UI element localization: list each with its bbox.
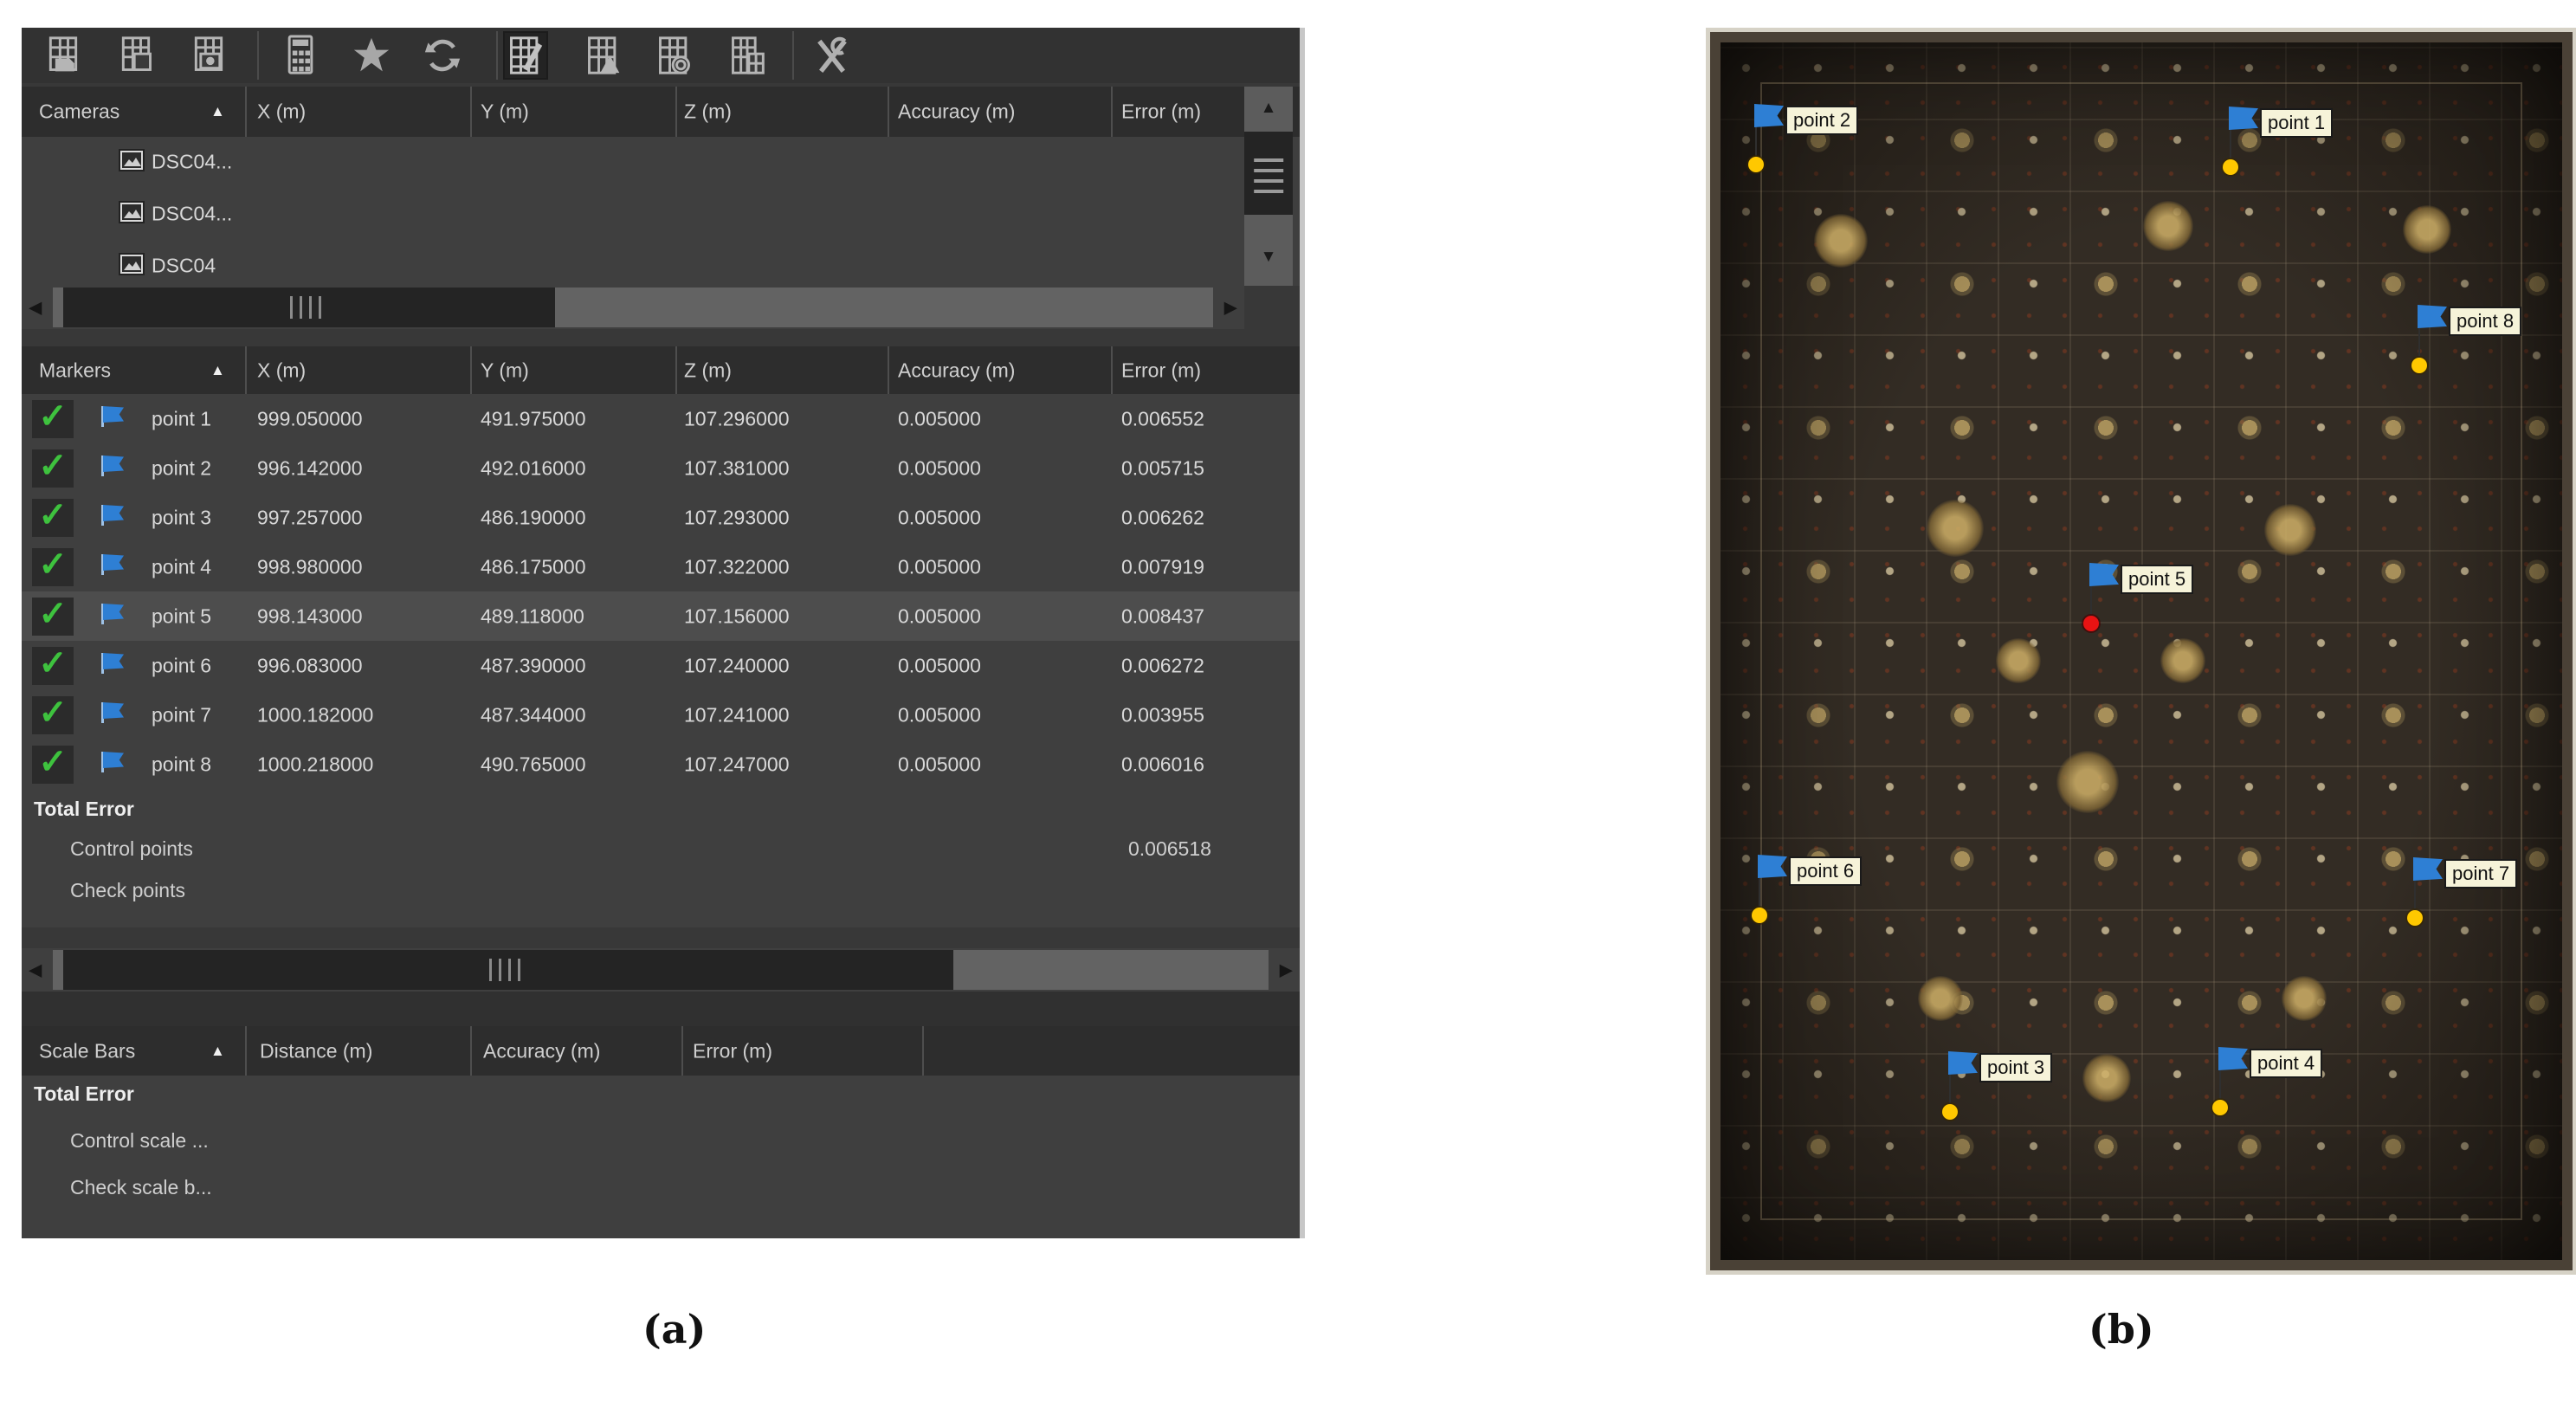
marker-z: 107.296000 xyxy=(684,407,790,430)
reference-pane: Cameras ▲ X (m) Y (m) Z (m) Accuracy (m)… xyxy=(22,28,1305,1238)
sort-ascending-icon[interactable]: ▲ xyxy=(210,1043,225,1060)
check-icon: ✓ xyxy=(38,646,68,681)
marker-dot-yellow xyxy=(1942,1104,1958,1120)
marker-checkbox[interactable]: ✓ xyxy=(32,499,74,537)
marker-x: 996.083000 xyxy=(257,654,363,677)
rosette-ornament xyxy=(1996,638,2041,683)
scrollbar-grip xyxy=(290,296,328,319)
marker-name: point 5 xyxy=(152,604,211,628)
marker-error: 0.006016 xyxy=(1121,753,1204,776)
marker-accuracy: 0.005000 xyxy=(898,654,981,677)
rosette-ornament xyxy=(1918,976,1963,1021)
marker-pole xyxy=(1755,125,1757,159)
column-separator[interactable] xyxy=(922,1026,924,1076)
marker-pole xyxy=(2414,878,2416,913)
scrollbar-thumb[interactable] xyxy=(1244,132,1293,215)
column-separator[interactable] xyxy=(1111,346,1113,394)
column-separator[interactable] xyxy=(888,87,889,137)
caption-b: (b) xyxy=(2089,1306,2154,1353)
check-icon: ✓ xyxy=(38,695,68,730)
marker-error: 0.003955 xyxy=(1121,703,1204,727)
marker-checkbox[interactable]: ✓ xyxy=(32,598,74,636)
marker-y: 487.390000 xyxy=(481,654,586,677)
photo-icon xyxy=(119,253,145,275)
flag-icon xyxy=(100,505,124,526)
scroll-right-icon[interactable]: ▶ xyxy=(1280,959,1293,981)
view-errors-icon[interactable] xyxy=(583,33,624,78)
marker-dot-yellow xyxy=(1752,908,1767,923)
toolbar-separator xyxy=(257,31,259,80)
cameras-horizontal-scrollbar[interactable]: ◀ ▶ xyxy=(22,286,1244,329)
marker-dot-yellow xyxy=(2407,910,2423,926)
marker-accuracy: 0.005000 xyxy=(898,506,981,529)
scroll-up-icon[interactable]: ▲ xyxy=(1261,99,1277,118)
column-separator[interactable] xyxy=(470,1026,472,1076)
scale-bars-title[interactable]: Scale Bars xyxy=(39,1039,135,1063)
check-icon: ✓ xyxy=(38,399,68,434)
cameras-table-header: Cameras ▲ X (m) Y (m) Z (m) Accuracy (m)… xyxy=(22,87,1300,137)
rosette-ornament xyxy=(2403,205,2451,254)
check-scale-bars-label: Check scale b... xyxy=(70,1176,212,1199)
check-icon: ✓ xyxy=(38,745,68,779)
marker-label: point 8 xyxy=(2449,307,2521,336)
marker-error: 0.008437 xyxy=(1121,604,1204,628)
marker-checkbox[interactable]: ✓ xyxy=(32,696,74,734)
optimize-cameras-icon[interactable] xyxy=(351,33,392,78)
marker-label: point 3 xyxy=(1979,1053,2052,1082)
marker-y: 486.175000 xyxy=(481,555,586,578)
column-accuracy[interactable]: Accuracy (m) xyxy=(898,359,1015,382)
reference-toolbar xyxy=(22,28,1300,83)
check-icon: ✓ xyxy=(38,597,68,631)
marker-x: 996.142000 xyxy=(257,456,363,480)
marker-name: point 7 xyxy=(152,703,211,727)
scale-bars-table-header: Scale Bars ▲ Distance (m) Accuracy (m) E… xyxy=(22,1026,1300,1076)
marker-row[interactable]: ✓ point 3 997.257000 486.190000 107.2930… xyxy=(22,493,1300,542)
marker-accuracy: 0.005000 xyxy=(898,555,981,578)
control-points-error-value: 0.006518 xyxy=(1128,837,1211,861)
marker-x: 998.980000 xyxy=(257,555,363,578)
column-z[interactable]: Z (m) xyxy=(684,100,732,124)
view-rotation-angles-icon[interactable] xyxy=(726,33,768,78)
marker-label: point 7 xyxy=(2444,859,2517,888)
column-separator[interactable] xyxy=(470,346,472,394)
marker-name: point 1 xyxy=(152,407,211,430)
photo-icon xyxy=(119,149,145,171)
update-transform-icon[interactable] xyxy=(422,33,463,78)
scroll-left-icon[interactable]: ◀ xyxy=(29,297,42,319)
check-icon: ✓ xyxy=(38,498,68,533)
column-separator[interactable] xyxy=(245,346,247,394)
central-star-ornament xyxy=(2056,751,2119,813)
camera-name: DSC04... xyxy=(152,202,232,225)
marker-checkbox[interactable]: ✓ xyxy=(32,400,74,438)
flag-icon xyxy=(100,554,124,575)
marker-accuracy: 0.005000 xyxy=(898,604,981,628)
marker-z: 107.156000 xyxy=(684,604,790,628)
marker-name: point 8 xyxy=(152,753,211,776)
rosette-ornament xyxy=(2143,201,2193,251)
column-separator[interactable] xyxy=(675,346,677,394)
marker-x: 1000.182000 xyxy=(257,703,373,727)
marker-error: 0.005715 xyxy=(1121,456,1204,480)
marker-dot-yellow xyxy=(2411,358,2427,373)
column-separator[interactable] xyxy=(245,87,247,137)
marker-accuracy: 0.005000 xyxy=(898,407,981,430)
camera-row[interactable]: DSC04... xyxy=(22,189,1300,238)
rosette-ornament xyxy=(1927,500,1984,557)
marker-x: 999.050000 xyxy=(257,407,363,430)
marker-row[interactable]: ✓ point 6 996.083000 487.390000 107.2400… xyxy=(22,641,1300,690)
column-y[interactable]: Y (m) xyxy=(481,100,529,124)
marker-checkbox[interactable]: ✓ xyxy=(32,449,74,488)
marker-y: 491.975000 xyxy=(481,407,586,430)
marker-error: 0.006272 xyxy=(1121,654,1204,677)
check-points-label: Check points xyxy=(70,879,185,902)
capture-reference-icon[interactable] xyxy=(188,33,229,78)
marker-pole xyxy=(2219,1068,2221,1102)
control-points-label: Control points xyxy=(70,837,193,861)
cameras-title[interactable]: Cameras xyxy=(39,100,119,124)
flag-icon xyxy=(100,653,124,674)
check-icon: ✓ xyxy=(38,449,68,483)
check-icon: ✓ xyxy=(38,547,68,582)
marker-checkbox[interactable]: ✓ xyxy=(32,746,74,784)
column-error[interactable]: Error (m) xyxy=(1121,359,1201,382)
column-separator[interactable] xyxy=(245,1026,247,1076)
marker-dot-yellow xyxy=(2212,1100,2228,1115)
markers-title[interactable]: Markers xyxy=(39,359,111,382)
marker-z: 107.322000 xyxy=(684,555,790,578)
marker-name: point 6 xyxy=(152,654,211,677)
marker-label: point 4 xyxy=(2250,1049,2322,1078)
marker-row[interactable]: ✓ point 8 1000.218000 490.765000 107.247… xyxy=(22,740,1300,789)
flag-icon xyxy=(100,604,124,624)
marker-z: 107.293000 xyxy=(684,506,790,529)
marker-row-selected[interactable]: ✓ point 5 998.143000 489.118000 107.1560… xyxy=(22,591,1300,641)
sort-ascending-icon[interactable]: ▲ xyxy=(210,362,225,379)
import-reference-icon[interactable] xyxy=(42,33,84,78)
coffer-border xyxy=(1760,82,2522,1220)
marker-accuracy: 0.005000 xyxy=(898,703,981,727)
rosette-ornament xyxy=(2264,504,2316,556)
scale-bars-table-body: Total Error Control scale ... Check scal… xyxy=(22,1076,1300,1238)
markers-table-body: ✓ point 1 999.050000 491.975000 107.2960… xyxy=(22,394,1300,927)
scrollbar-grip xyxy=(489,959,527,981)
marker-pole xyxy=(2230,127,2231,162)
ceiling-orthophoto: point 2 point 1 point 8 point 5 point 6 … xyxy=(1706,28,2576,1275)
toolbar-separator xyxy=(496,31,498,80)
toolbar-separator xyxy=(792,31,794,80)
column-accuracy[interactable]: Accuracy (m) xyxy=(483,1039,600,1063)
column-separator[interactable] xyxy=(470,87,472,137)
camera-name: DSC04... xyxy=(152,150,232,173)
cameras-table-body: DSC04... DSC04... DSC04 xyxy=(22,137,1300,286)
marker-x: 998.143000 xyxy=(257,604,363,628)
marker-z: 107.241000 xyxy=(684,703,790,727)
marker-row[interactable]: ✓ point 2 996.142000 492.016000 107.3810… xyxy=(22,443,1300,493)
marker-y: 487.344000 xyxy=(481,703,586,727)
marker-label: point 1 xyxy=(2260,108,2333,138)
marker-checkbox[interactable]: ✓ xyxy=(32,647,74,685)
rosette-ornament xyxy=(2282,976,2327,1021)
marker-z: 107.381000 xyxy=(684,456,790,480)
marker-z: 107.240000 xyxy=(684,654,790,677)
marker-name: point 2 xyxy=(152,456,211,480)
column-separator[interactable] xyxy=(681,1026,683,1076)
marker-checkbox[interactable]: ✓ xyxy=(32,548,74,586)
marker-accuracy: 0.005000 xyxy=(898,456,981,480)
marker-name: point 3 xyxy=(152,506,211,529)
flag-icon xyxy=(100,702,124,723)
column-z[interactable]: Z (m) xyxy=(684,359,732,382)
scrollbar-thumb[interactable] xyxy=(63,950,953,990)
photo-icon xyxy=(119,201,145,223)
column-x[interactable]: X (m) xyxy=(257,359,306,382)
marker-error: 0.007919 xyxy=(1121,555,1204,578)
flag-icon xyxy=(100,752,124,772)
marker-label: point 5 xyxy=(2121,565,2193,594)
scroll-right-icon[interactable]: ▶ xyxy=(1224,297,1237,319)
scroll-left-icon[interactable]: ◀ xyxy=(29,959,42,981)
column-y[interactable]: Y (m) xyxy=(481,359,529,382)
marker-x: 997.257000 xyxy=(257,506,363,529)
marker-pole xyxy=(1949,1072,1951,1107)
caption-a: (a) xyxy=(642,1306,706,1353)
marker-error: 0.006262 xyxy=(1121,506,1204,529)
marker-dot-yellow xyxy=(1748,157,1764,172)
control-scale-bars-label: Control scale ... xyxy=(70,1129,209,1153)
view-variance-icon[interactable] xyxy=(654,33,695,78)
flag-icon xyxy=(100,406,124,427)
marker-label: point 6 xyxy=(1789,856,1862,886)
camera-name: DSC04 xyxy=(152,254,216,277)
rosette-ornament xyxy=(1814,214,1868,268)
marker-y: 486.190000 xyxy=(481,506,586,529)
marker-dot-yellow xyxy=(2223,159,2238,175)
marker-y: 489.118000 xyxy=(481,604,584,628)
section-divider xyxy=(22,992,1300,1026)
marker-pole xyxy=(2090,584,2092,618)
flag-icon xyxy=(100,455,124,476)
column-error[interactable]: Error (m) xyxy=(1121,100,1201,124)
column-separator[interactable] xyxy=(1111,87,1113,137)
column-separator[interactable] xyxy=(675,87,677,137)
marker-y: 492.016000 xyxy=(481,456,586,480)
marker-row[interactable]: ✓ point 7 1000.182000 487.344000 107.241… xyxy=(22,690,1300,740)
rosette-ornament xyxy=(2160,638,2205,683)
view-estimated-icon[interactable] xyxy=(505,33,546,78)
sort-ascending-icon[interactable]: ▲ xyxy=(210,103,225,120)
marker-pole xyxy=(1759,875,1760,910)
column-x[interactable]: X (m) xyxy=(257,100,306,124)
marker-name: point 4 xyxy=(152,555,211,578)
markers-horizontal-scrollbar[interactable]: ◀ ▶ xyxy=(22,948,1300,992)
export-reference-icon[interactable] xyxy=(115,33,157,78)
column-accuracy[interactable]: Accuracy (m) xyxy=(898,100,1015,124)
marker-dot-red xyxy=(2083,616,2099,631)
marker-x: 1000.218000 xyxy=(257,753,373,776)
camera-row[interactable]: DSC04 xyxy=(22,241,1300,286)
column-separator[interactable] xyxy=(888,346,889,394)
rosette-ornament xyxy=(2082,1054,2131,1102)
marker-y: 490.765000 xyxy=(481,753,586,776)
scrollbar-grip xyxy=(1254,153,1283,193)
marker-row[interactable]: ✓ point 1 999.050000 491.975000 107.2960… xyxy=(22,394,1300,443)
marker-error: 0.006552 xyxy=(1121,407,1204,430)
scroll-down-icon[interactable]: ▼ xyxy=(1261,248,1277,267)
marker-pole xyxy=(2418,326,2420,360)
cameras-vertical-scrollbar[interactable]: ▲ ▼ xyxy=(1244,87,1293,286)
marker-z: 107.247000 xyxy=(684,753,790,776)
scrollbar-thumb[interactable] xyxy=(63,288,555,327)
convert-reference-icon[interactable] xyxy=(280,33,321,78)
reference-settings-icon[interactable] xyxy=(811,33,853,78)
marker-row[interactable]: ✓ point 4 998.980000 486.175000 107.3220… xyxy=(22,542,1300,591)
markers-table-header: Markers ▲ X (m) Y (m) Z (m) Accuracy (m)… xyxy=(22,346,1300,394)
camera-row[interactable]: DSC04... xyxy=(22,137,1300,186)
marker-label: point 2 xyxy=(1785,106,1858,135)
marker-accuracy: 0.005000 xyxy=(898,753,981,776)
column-error[interactable]: Error (m) xyxy=(693,1039,772,1063)
column-distance[interactable]: Distance (m) xyxy=(260,1039,372,1063)
